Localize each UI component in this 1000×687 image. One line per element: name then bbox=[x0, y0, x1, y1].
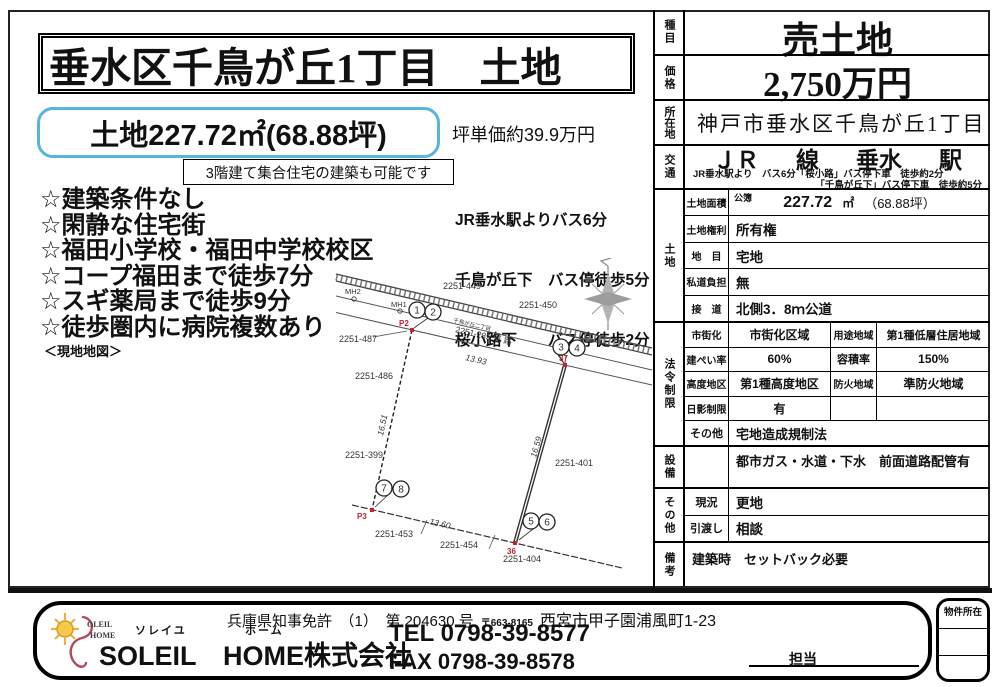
spec-table: 種目 売土地 価格 2,750万円 所在地 神戸市垂水区千鳥が丘1丁目 交通 Ｊ… bbox=[653, 10, 990, 588]
genkyo-row: 現況 更地 bbox=[685, 489, 990, 515]
land-private-road-row: 私道負担 無 bbox=[685, 268, 990, 294]
law-row: 建ぺい率 60% 容積率 150% bbox=[685, 347, 990, 372]
survey-mark: 36 bbox=[507, 547, 516, 556]
map-label: MH2 bbox=[345, 287, 361, 296]
setsubi-label: 設備 bbox=[655, 447, 685, 487]
area-value: 227.72 bbox=[783, 194, 832, 212]
survey-mark: P3 bbox=[357, 512, 367, 521]
feature-item: ☆徒歩圏内に病院複数あり bbox=[40, 315, 374, 341]
parcel-label: 2251-401 bbox=[555, 458, 593, 468]
site-map-svg: MH2 MH1 2251-449 2251-450 2251-487 2251-… bbox=[333, 258, 653, 588]
transport-label: 交通 bbox=[655, 146, 685, 188]
law-other-row: その他 宅地造成規制法 bbox=[685, 420, 990, 445]
land-chimoku-row: 地 目 宅地 bbox=[685, 242, 990, 268]
tsubo-unit-price: 坪単価約39.9万円 bbox=[452, 121, 595, 147]
land-label: 土地 bbox=[655, 190, 685, 321]
land-area-text: 土地227.72㎡(68.88坪) bbox=[90, 112, 387, 154]
feature-list: ☆建築条件なし ☆閑静な住宅街 ☆福田小学校・福田中学校校区 ☆コープ福田まで徒… bbox=[40, 187, 374, 340]
map-label: MH1 bbox=[391, 300, 407, 309]
location-label: 所在地 bbox=[655, 101, 685, 144]
spec-group-land: 土地 土地面積 公簿 227.72 ㎡ （68.88坪） 土地権利 所有権 bbox=[655, 188, 990, 321]
spec-row-category: 種目 売土地 bbox=[655, 10, 990, 54]
law-row: 高度地区 第1種高度地区 防火地域 準防火地域 bbox=[685, 371, 990, 396]
law-row: 市街化 市街化区域 用途地域 第1種低層住居地域 bbox=[685, 323, 990, 347]
map-caption: ＜現地地図＞ bbox=[44, 341, 122, 360]
staff-line: 担当 bbox=[749, 649, 919, 667]
spec-group-sonota: その他 現況 更地 引渡し 相談 bbox=[655, 487, 990, 541]
spec-row-location: 所在地 神戸市垂水区千鳥が丘1丁目 bbox=[655, 99, 990, 144]
svg-text:4: 4 bbox=[574, 344, 580, 355]
telfax-block: TEL 0798-39-8577 FAX 0798-39-8578 bbox=[389, 620, 590, 675]
feature-item: ☆スギ薬局まで徒歩9分 bbox=[40, 289, 374, 315]
survey-mark: P2 bbox=[399, 319, 409, 328]
measure-label: 13.93 bbox=[465, 352, 488, 367]
parcel-label: 2251-454 bbox=[440, 540, 478, 550]
compass-north-icon bbox=[584, 258, 632, 330]
property-location-blank bbox=[939, 628, 987, 655]
land-right-row: 土地権利 所有権 bbox=[685, 215, 990, 241]
measure-label: 13.60 bbox=[429, 516, 452, 531]
logo-text-oleil: OLEIL bbox=[87, 620, 112, 629]
svg-text:8: 8 bbox=[398, 485, 404, 496]
law-label: 法令制限 bbox=[655, 323, 685, 445]
spec-group-setsubi: 設備 都市ガス・水道・下水 前面道路配管有 bbox=[655, 445, 990, 487]
feature-item: ☆福田小学校・福田中学校校区 bbox=[40, 238, 374, 264]
feature-item: ☆閑静な住宅街 bbox=[40, 213, 374, 239]
sonota-label: その他 bbox=[655, 489, 685, 541]
company-box: 兵庫県知事免許 （1） 第 204630 号 〒663-8165 西宮市甲子園浦… bbox=[33, 601, 932, 680]
category-label: 種目 bbox=[655, 10, 685, 54]
law-row: 日影制限 有 bbox=[685, 396, 990, 421]
svg-text:1: 1 bbox=[414, 306, 420, 317]
page-title: 垂水区千鳥が丘1丁目 土地 bbox=[49, 34, 562, 94]
parcel-label: 2251-486 bbox=[355, 371, 393, 381]
setsubi-value: 都市ガス・水道・下水 前面道路配管有 bbox=[729, 447, 990, 487]
land-setsudo-row: 接 道 北側3．8ｍ公道 bbox=[685, 295, 990, 321]
parcel-label: 2251-449 bbox=[443, 281, 481, 291]
register-type: 公簿 bbox=[734, 191, 752, 204]
flyer-page: 垂水区千鳥が丘1丁目 土地 土地227.72㎡(68.88坪) 坪単価約39.9… bbox=[0, 0, 1000, 687]
svg-text:6: 6 bbox=[544, 518, 550, 529]
build-note-box: 3階建て集合住宅の建築も可能です bbox=[183, 159, 454, 185]
property-location-blank bbox=[939, 655, 987, 679]
feature-item: ☆建築条件なし bbox=[40, 187, 374, 213]
area-tsubo: （68.88坪） bbox=[864, 193, 936, 212]
svg-text:2: 2 bbox=[430, 308, 436, 319]
svg-text:5: 5 bbox=[528, 517, 534, 528]
tel-number: TEL 0798-39-8577 bbox=[389, 620, 590, 648]
biko-value: 建築時 セットバック必要 bbox=[685, 543, 990, 586]
company-name: SOLEIL HOME株式会社 bbox=[99, 634, 412, 673]
spec-group-biko: 備考 建築時 セットバック必要 bbox=[655, 541, 990, 586]
measure-label: 16.51 bbox=[375, 413, 389, 436]
location-value: 神戸市垂水区千鳥が丘1丁目 bbox=[685, 101, 990, 144]
land-area-row: 土地面積 公簿 227.72 ㎡ （68.88坪） bbox=[685, 190, 990, 215]
spec-row-transport: 交通 ＪＲ 線 垂水 駅 JR垂水駅より バス6分「桜小路」バス停下車 徒歩約2… bbox=[655, 144, 990, 188]
site-map: MH2 MH1 2251-449 2251-450 2251-487 2251-… bbox=[333, 258, 653, 588]
parcel-label: 2251-450 bbox=[519, 300, 557, 310]
svg-text:7: 7 bbox=[381, 484, 387, 495]
transport-station-line: ＪＲ 線 垂水 駅 bbox=[685, 146, 990, 170]
feature-item: ☆コープ福田まで徒歩7分 bbox=[40, 264, 374, 290]
page-title-box: 垂水区千鳥が丘1丁目 土地 bbox=[38, 33, 635, 94]
access-line: JR垂水駅よりバス6分 bbox=[455, 211, 650, 231]
parcel-label: 2251-453 bbox=[375, 529, 413, 539]
biko-label: 備考 bbox=[655, 543, 685, 586]
price-label: 価格 bbox=[655, 56, 685, 99]
spec-group-law: 法令制限 市街化 市街化区域 用途地域 第1種低層住居地域 建ぺい率 60% 容… bbox=[655, 321, 990, 445]
hikiwatashi-row: 引渡し 相談 bbox=[685, 515, 990, 542]
property-location-box: 物件所在 bbox=[936, 598, 990, 682]
staff-label: 担当 bbox=[789, 651, 817, 667]
property-location-label: 物件所在 bbox=[939, 601, 987, 628]
area-unit: ㎡ bbox=[842, 194, 854, 211]
build-note: 3階建て集合住宅の建築も可能です bbox=[206, 162, 432, 183]
parcel-label: 2251-399 bbox=[345, 450, 383, 460]
svg-text:3: 3 bbox=[558, 343, 564, 354]
fax-number: FAX 0798-39-8578 bbox=[389, 649, 590, 675]
land-area-badge: 土地227.72㎡(68.88坪) bbox=[37, 107, 440, 158]
spec-row-price: 価格 2,750万円 bbox=[655, 54, 990, 99]
parcel-label: 2251-487 bbox=[339, 334, 377, 344]
footer-divider bbox=[8, 588, 992, 593]
